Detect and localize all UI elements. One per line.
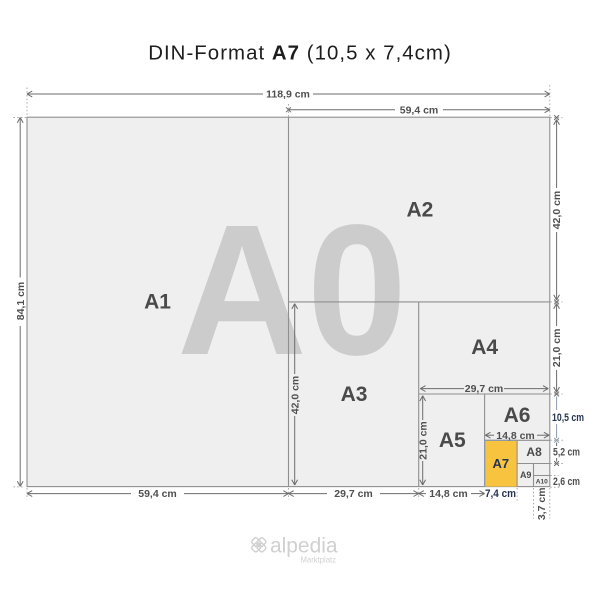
svg-text:A5: A5 [439, 429, 466, 452]
svg-text:59,4 cm: 59,4 cm [138, 488, 177, 500]
svg-text:21,0 cm: 21,0 cm [417, 421, 429, 460]
svg-text:118,9 cm: 118,9 cm [266, 89, 310, 101]
svg-text:A8: A8 [526, 445, 542, 459]
svg-text:21,0 cm: 21,0 cm [551, 329, 563, 368]
svg-text:59,4 cm: 59,4 cm [400, 104, 439, 116]
svg-text:A6: A6 [504, 404, 531, 427]
svg-text:DIN-Format A7 (10,5 x 7,4cm): DIN-Format A7 (10,5 x 7,4cm) [148, 43, 452, 65]
svg-text:29,7 cm: 29,7 cm [334, 488, 373, 500]
svg-text:A1: A1 [144, 291, 171, 314]
svg-text:42,0 cm: 42,0 cm [289, 376, 301, 415]
svg-text:A4: A4 [471, 336, 498, 359]
svg-text:84,1 cm: 84,1 cm [15, 282, 27, 321]
svg-text:A0: A0 [177, 187, 407, 394]
svg-text:A10: A10 [536, 478, 548, 485]
svg-text:7,4 cm: 7,4 cm [485, 488, 516, 500]
svg-text:Marktplatz: Marktplatz [301, 554, 337, 564]
svg-text:42,0 cm: 42,0 cm [551, 191, 563, 230]
svg-text:A3: A3 [341, 383, 368, 406]
svg-text:14,8 cm: 14,8 cm [496, 430, 535, 442]
svg-text:5,2 cm: 5,2 cm [553, 447, 580, 459]
svg-text:29,7 cm: 29,7 cm [465, 383, 504, 395]
svg-text:3,7 cm: 3,7 cm [536, 487, 548, 520]
svg-text:A2: A2 [406, 198, 433, 221]
svg-text:2,6 cm: 2,6 cm [553, 476, 580, 488]
svg-text:A9: A9 [520, 470, 532, 480]
svg-text:14,8 cm: 14,8 cm [429, 488, 468, 500]
svg-text:A7: A7 [492, 456, 509, 471]
svg-text:10,5 cm: 10,5 cm [552, 412, 584, 424]
